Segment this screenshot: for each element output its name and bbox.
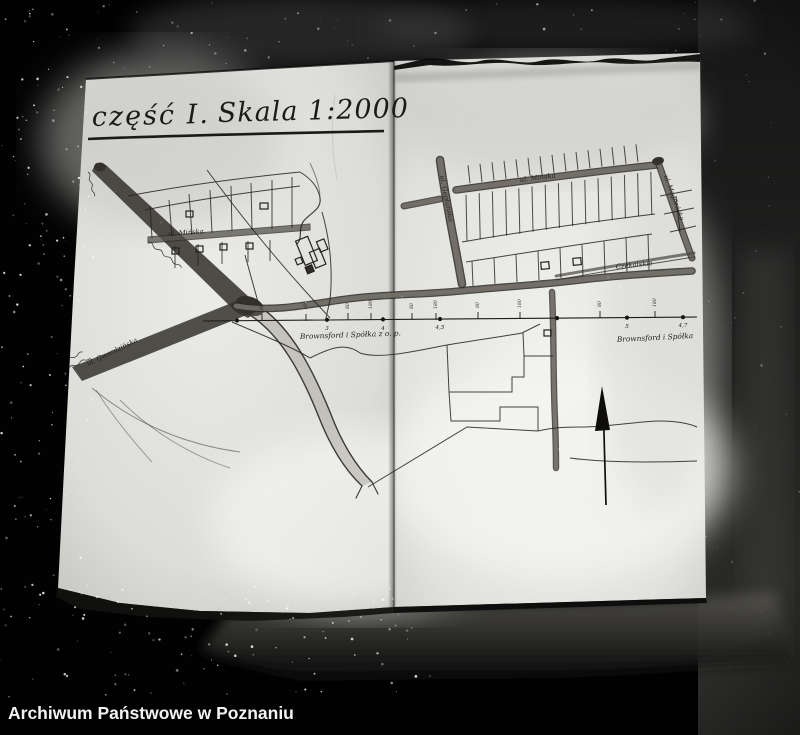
archival-photo: 80 180 80 180 80 180 80 180 80 180 3 4 xyxy=(0,0,800,735)
vignette xyxy=(0,0,800,735)
archival-photo-canvas: 80 180 80 180 80 180 80 180 80 180 3 4 xyxy=(0,0,800,735)
archive-caption: Archiwum Państwowe w Poznaniu xyxy=(8,703,294,723)
